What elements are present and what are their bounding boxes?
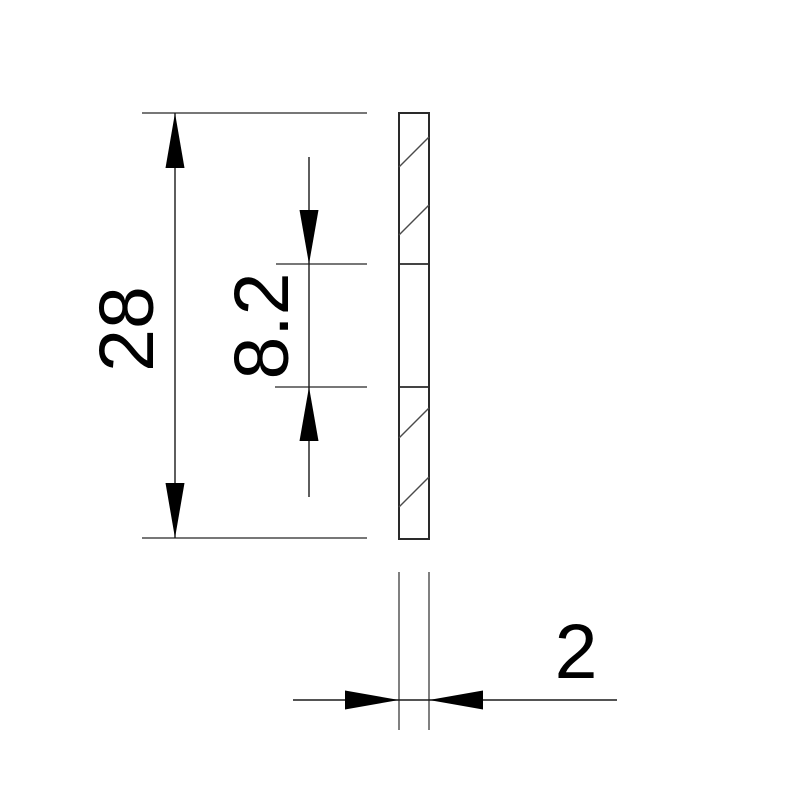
- arrowhead-down-icon: [300, 210, 319, 264]
- arrowhead-up-icon: [300, 387, 319, 441]
- technical-drawing: 28 8.2 2: [0, 0, 800, 800]
- arrowhead-right-icon: [345, 691, 399, 710]
- dimension-middle-section: 8.2: [219, 157, 367, 497]
- part-outline: [399, 113, 429, 539]
- arrowhead-down-icon: [166, 483, 185, 538]
- dimension-label-height: 28: [84, 286, 170, 372]
- dimension-label-thickness: 2: [555, 609, 598, 695]
- arrowhead-up-icon: [166, 113, 185, 168]
- arrowhead-left-icon: [429, 691, 483, 710]
- drawing-canvas: 28 8.2 2: [0, 0, 800, 800]
- part-section-view: [399, 113, 429, 539]
- dimension-thickness: 2: [293, 572, 617, 730]
- dimension-label-middle: 8.2: [219, 272, 305, 379]
